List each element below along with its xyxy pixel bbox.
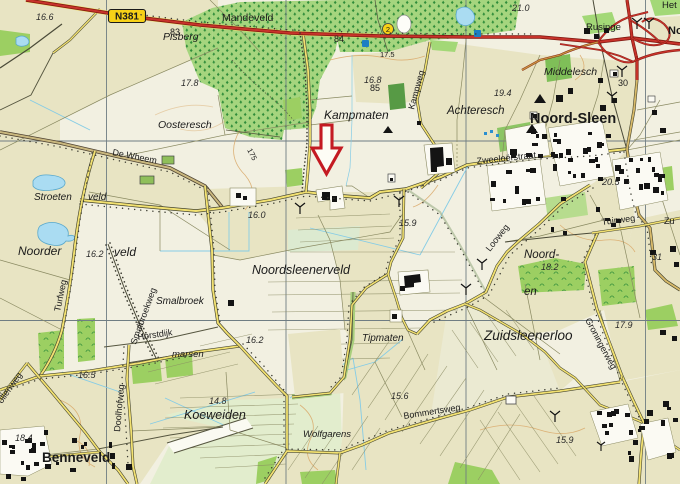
svg-text:83: 83 — [170, 27, 180, 37]
svg-text:18.4: 18.4 — [15, 433, 33, 443]
svg-text:No: No — [668, 25, 680, 37]
svg-text:31: 31 — [652, 252, 662, 262]
svg-text:14.8: 14.8 — [209, 396, 227, 406]
svg-text:Noord-Sleen: Noord-Sleen — [530, 111, 616, 127]
svg-text:Rusinge: Rusinge — [586, 22, 621, 33]
svg-text:21.0: 21.0 — [511, 3, 530, 13]
svg-text:Smalbroek: Smalbroek — [156, 296, 205, 307]
svg-text:Zuidsleenerloo: Zuidsleenerloo — [483, 328, 573, 343]
svg-text:marsen: marsen — [172, 349, 204, 360]
svg-text:Mandeveld: Mandeveld — [222, 12, 274, 24]
svg-text:Tipmaten: Tipmaten — [362, 333, 404, 344]
svg-text:84: 84 — [334, 34, 344, 44]
svg-text:en: en — [524, 286, 537, 298]
svg-text:30: 30 — [618, 78, 628, 88]
svg-text:15.9: 15.9 — [556, 435, 574, 445]
svg-text:16.0: 16.0 — [248, 210, 266, 220]
svg-text:17.9: 17.9 — [615, 320, 633, 330]
svg-text:15.6: 15.6 — [391, 391, 409, 401]
svg-text:N381: N381 — [115, 12, 139, 23]
svg-text:veld: veld — [114, 245, 136, 259]
svg-text:16.2: 16.2 — [246, 335, 264, 345]
svg-text:Koeweiden: Koeweiden — [184, 408, 246, 422]
svg-text:16.5: 16.5 — [78, 370, 97, 380]
svg-text:Het: Het — [662, 0, 677, 11]
svg-text:19.4: 19.4 — [494, 88, 512, 98]
svg-text:Middelesch: Middelesch — [544, 66, 597, 78]
svg-text:Pisberg: Pisberg — [163, 31, 199, 43]
svg-text:Kampmaten: Kampmaten — [324, 108, 389, 122]
svg-text:veld: veld — [88, 192, 107, 203]
svg-text:16.8: 16.8 — [364, 75, 382, 85]
svg-text:Benneveld: Benneveld — [42, 450, 110, 465]
svg-text:17.8: 17.8 — [181, 78, 199, 88]
svg-text:Noord-: Noord- — [524, 249, 559, 261]
svg-text:Oosteresch: Oosteresch — [158, 119, 212, 131]
svg-text:18.2: 18.2 — [541, 262, 559, 272]
svg-text:Wolfgarens: Wolfgarens — [303, 429, 351, 440]
svg-text:16.6: 16.6 — [36, 12, 54, 22]
svg-text:Zu: Zu — [664, 216, 675, 226]
svg-text:Noordsleenerveld: Noordsleenerveld — [252, 263, 351, 277]
svg-text:2: 2 — [386, 25, 390, 34]
svg-text:Achteresch: Achteresch — [446, 105, 505, 117]
svg-text:Stroeten: Stroeten — [34, 192, 72, 203]
svg-text:15.9: 15.9 — [399, 218, 417, 228]
svg-text:17.5: 17.5 — [380, 50, 395, 59]
svg-text:16.2: 16.2 — [86, 249, 104, 259]
svg-text:20.5: 20.5 — [601, 177, 621, 187]
svg-text:Noorder: Noorder — [18, 244, 62, 258]
